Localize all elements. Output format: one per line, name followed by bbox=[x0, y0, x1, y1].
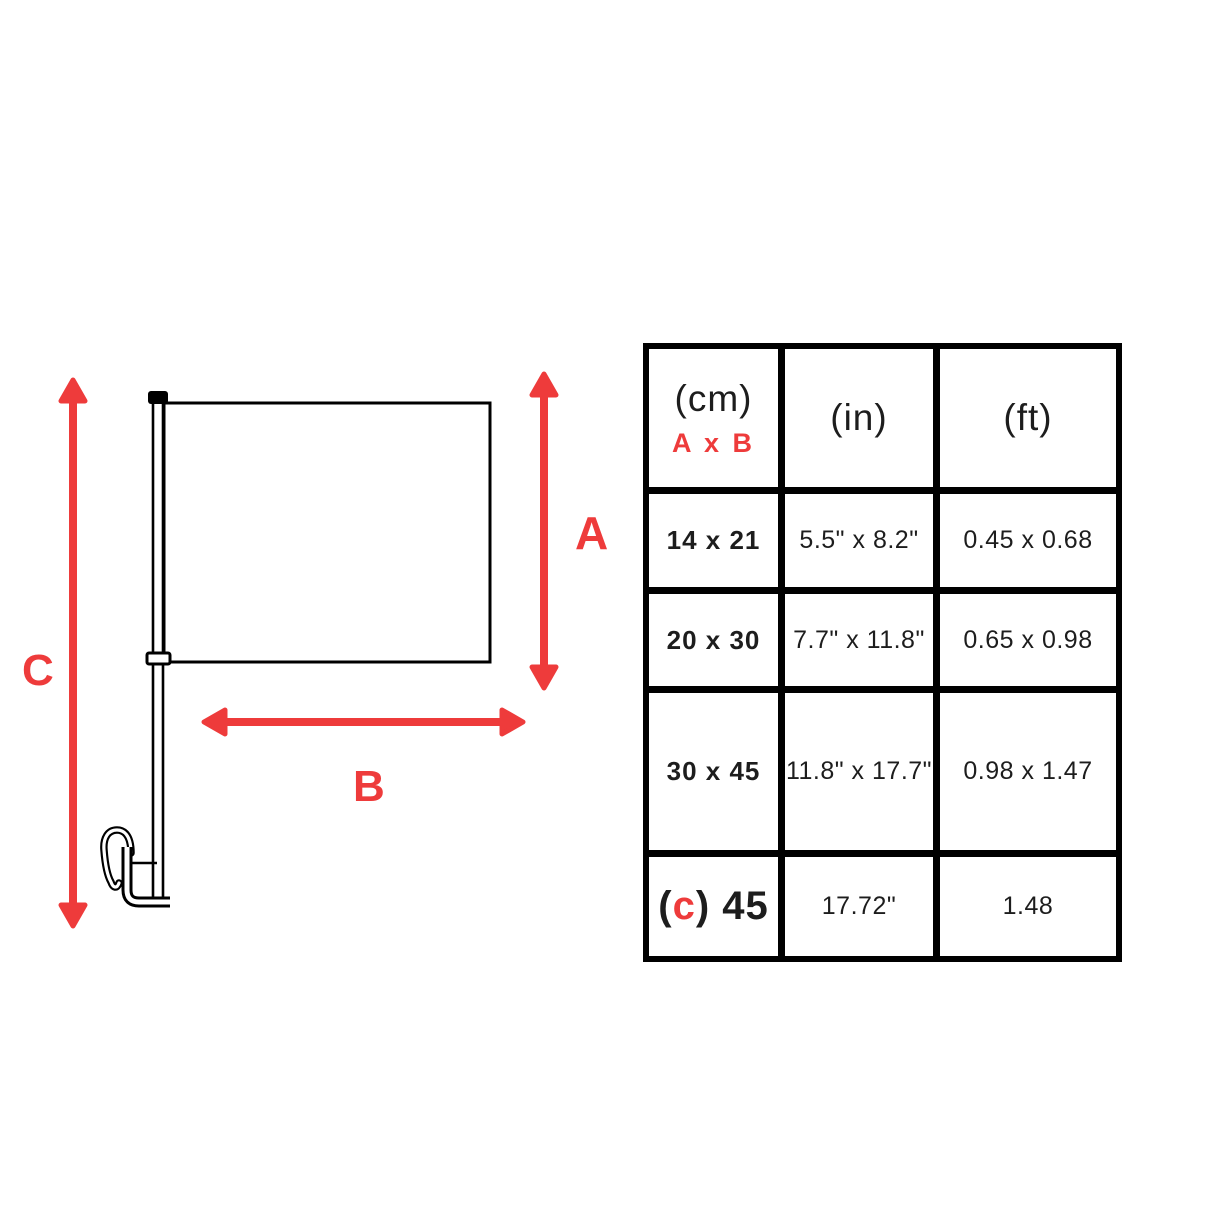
header-cm-unit: (cm) bbox=[675, 378, 753, 420]
row3-cm: 30 x 45 bbox=[649, 693, 778, 850]
pole-cap bbox=[148, 391, 168, 404]
table-header-ft: (ft) bbox=[940, 349, 1116, 487]
row2-cm: 20 x 30 bbox=[649, 594, 778, 686]
dimension-arrow-c bbox=[61, 380, 85, 926]
label-c: C bbox=[22, 646, 54, 695]
row3-in: 11.8" x 17.7" bbox=[785, 693, 933, 850]
dimension-arrow-a bbox=[532, 374, 556, 688]
label-a: A bbox=[575, 507, 608, 559]
label-b: B bbox=[353, 762, 385, 811]
row2-ft: 0.65 x 0.98 bbox=[940, 594, 1116, 686]
table-header-in: (in) bbox=[785, 349, 933, 487]
row1-ft: 0.45 x 0.68 bbox=[940, 494, 1116, 587]
header-axb: A x B bbox=[672, 428, 755, 459]
row2-in: 7.7" x 11.8" bbox=[785, 594, 933, 686]
size-table: (cm) A x B (in) (ft) 14 x 21 5.5" x 8.2"… bbox=[643, 343, 1122, 962]
row4-cm-open: ( bbox=[658, 884, 672, 929]
row4-ft: 1.48 bbox=[940, 857, 1116, 956]
row3-ft: 0.98 x 1.47 bbox=[940, 693, 1116, 850]
row4-cm: (c) 45 bbox=[649, 857, 778, 956]
row1-in: 5.5" x 8.2" bbox=[785, 494, 933, 587]
row4-cm-c: c bbox=[673, 884, 696, 929]
row4-in: 17.72" bbox=[785, 857, 933, 956]
flag-panel bbox=[164, 403, 490, 662]
car-flag-graphic bbox=[104, 391, 490, 902]
pole-collar bbox=[147, 653, 170, 664]
row4-cm-close: ) 45 bbox=[696, 884, 769, 929]
table-header-cm: (cm) A x B bbox=[649, 349, 778, 487]
dimension-arrow-b bbox=[204, 710, 523, 734]
car-flag-size-chart: C A B (cm) A x B (in) (ft) 14 x 21 5.5" … bbox=[0, 0, 1214, 1214]
row1-cm: 14 x 21 bbox=[649, 494, 778, 587]
